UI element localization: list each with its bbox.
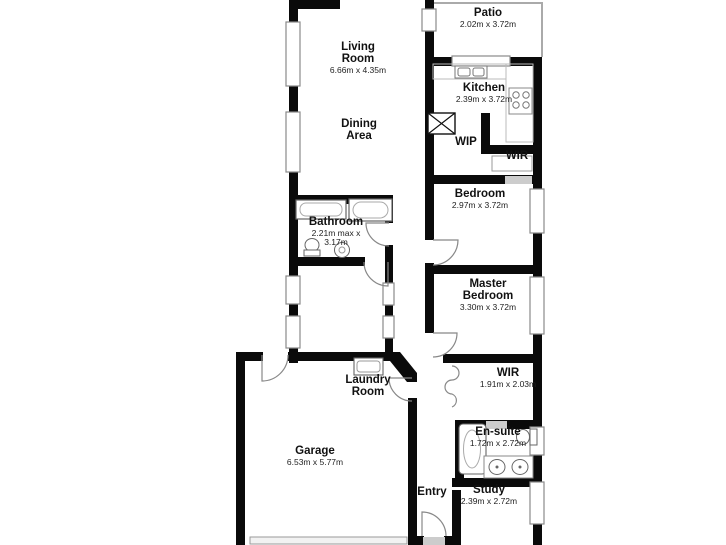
- vanity-bench: [484, 456, 533, 478]
- window: [286, 276, 300, 304]
- ensuite-toilet: [517, 429, 538, 445]
- window: [422, 9, 436, 31]
- basin-drain: [519, 466, 522, 469]
- garage-roller-door: [250, 537, 407, 544]
- wir-shelf: [492, 156, 532, 171]
- floor-plan: Living Room 6.66m x 4.35m Patio 2.02m x …: [0, 0, 726, 545]
- window: [286, 316, 300, 348]
- basin-drain: [496, 466, 499, 469]
- window: [530, 277, 544, 334]
- toilet-cistern: [304, 250, 320, 256]
- toilet-cistern: [530, 429, 537, 445]
- shower: [459, 424, 486, 474]
- wall-entry-left: [408, 398, 417, 545]
- patio-outline: [434, 3, 542, 57]
- wall-garage-left: [236, 352, 245, 545]
- window: [530, 482, 544, 524]
- basin: [335, 243, 350, 258]
- wall-bedroom-bottom: [425, 265, 540, 274]
- basin-bowl: [335, 243, 350, 258]
- window: [286, 112, 300, 172]
- garage-door-swing: [262, 355, 288, 381]
- bedroom3-door: [364, 262, 388, 286]
- wall-entry-bottom-a: [408, 536, 424, 545]
- opening-bedroom-door: [505, 176, 532, 184]
- wir-bifold-door: [445, 366, 459, 407]
- wall-wir-top: [481, 145, 540, 154]
- floor-plan-drawing: [0, 0, 726, 545]
- opening-entry-door: [423, 537, 445, 545]
- wall-entry-bottom-b: [444, 536, 461, 545]
- wall-top-stub: [289, 0, 340, 9]
- pantry-shelf: [428, 113, 455, 134]
- laundry-trough: [354, 358, 383, 375]
- window: [383, 316, 394, 338]
- wall-garage-top-a: [236, 352, 263, 361]
- wall-master-bottom: [443, 354, 540, 363]
- wall-study-top: [452, 478, 540, 487]
- toilet: [304, 239, 320, 257]
- opening-ensuite-door: [486, 421, 507, 429]
- window: [286, 22, 300, 86]
- cooktop: [509, 88, 532, 114]
- ensuite-vanity: [484, 456, 533, 478]
- wall-hall-left: [385, 265, 393, 352]
- entry-door: [422, 512, 446, 536]
- wall-bedroom-left: [425, 183, 434, 240]
- toilet-bowl: [517, 430, 530, 445]
- wall-bathroom-bottom: [289, 257, 365, 266]
- master-bedroom-door: [433, 333, 457, 357]
- window: [530, 189, 544, 233]
- bedroom-door: [433, 240, 458, 265]
- bathroom-door: [366, 223, 389, 246]
